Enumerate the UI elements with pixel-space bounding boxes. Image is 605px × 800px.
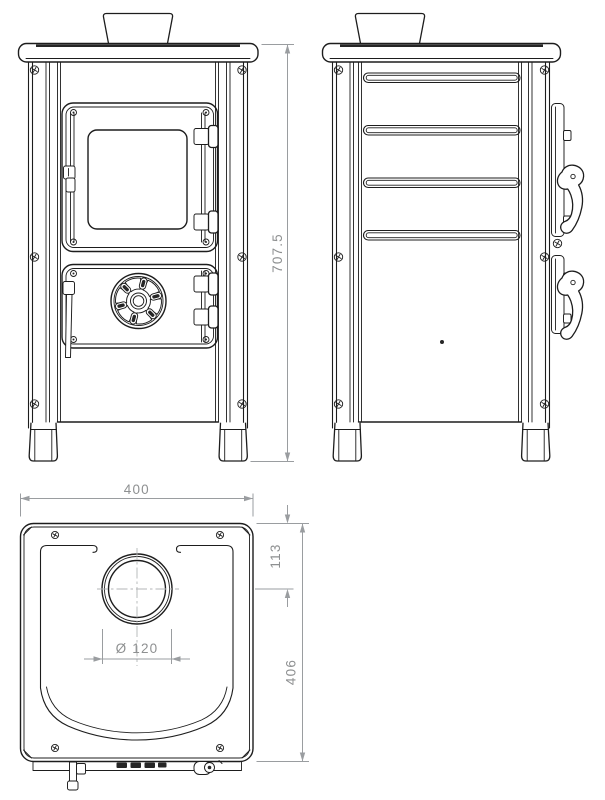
fire-door bbox=[62, 103, 218, 252]
dimension-overall-width-label: 400 bbox=[124, 482, 150, 497]
dimension-overall-height: 707.5 bbox=[251, 45, 295, 462]
fire-door-window bbox=[88, 130, 187, 229]
dimension-overall-width: 400 bbox=[21, 482, 254, 517]
hinge-tabs-top-view bbox=[117, 763, 167, 769]
air-vent-rosette bbox=[111, 274, 166, 329]
ash-door bbox=[62, 265, 218, 358]
dimension-flue-offset: 113 bbox=[255, 505, 309, 607]
flue-collar-front bbox=[103, 14, 172, 44]
dimension-overall-depth-label: 406 bbox=[284, 659, 299, 685]
body-panel-front bbox=[58, 62, 219, 422]
ash-door-hinge-bottom bbox=[194, 306, 218, 328]
decorative-slot bbox=[364, 73, 521, 83]
hinge-knob-top-view bbox=[194, 761, 222, 775]
panel-pin bbox=[440, 340, 444, 344]
side-panel bbox=[359, 62, 522, 422]
dimension-flue-diameter-label: Ø 120 bbox=[116, 641, 159, 656]
decorative-slot bbox=[364, 231, 521, 241]
latch-top-view bbox=[68, 762, 86, 790]
legs-front bbox=[29, 423, 247, 461]
dimension-overall-height-label: 707.5 bbox=[270, 233, 285, 273]
top-view bbox=[21, 524, 254, 791]
front-view bbox=[19, 14, 259, 462]
stove-technical-drawing: 707.5 400 113 406 Ø 120 bbox=[0, 0, 605, 800]
top-plate-front bbox=[19, 44, 259, 63]
drawing-canvas: 707.5 400 113 406 Ø 120 bbox=[0, 0, 605, 800]
dimension-flue-offset-label: 113 bbox=[268, 543, 283, 568]
legs-side bbox=[333, 423, 550, 461]
fire-door-hinge-top bbox=[194, 126, 218, 148]
decorative-slot bbox=[364, 178, 521, 188]
ash-door-hinge-top bbox=[194, 273, 218, 295]
ash-door-latch-lever bbox=[63, 282, 75, 358]
decorative-slot bbox=[364, 126, 521, 136]
bottom-edge-fittings bbox=[33, 761, 242, 791]
side-view bbox=[323, 14, 584, 462]
flue-collar-side bbox=[355, 14, 424, 44]
fire-door-hinge-bottom bbox=[194, 211, 218, 233]
fire-door-latch bbox=[64, 166, 76, 192]
side-columns-side bbox=[333, 62, 550, 428]
top-plate-side bbox=[323, 44, 561, 63]
